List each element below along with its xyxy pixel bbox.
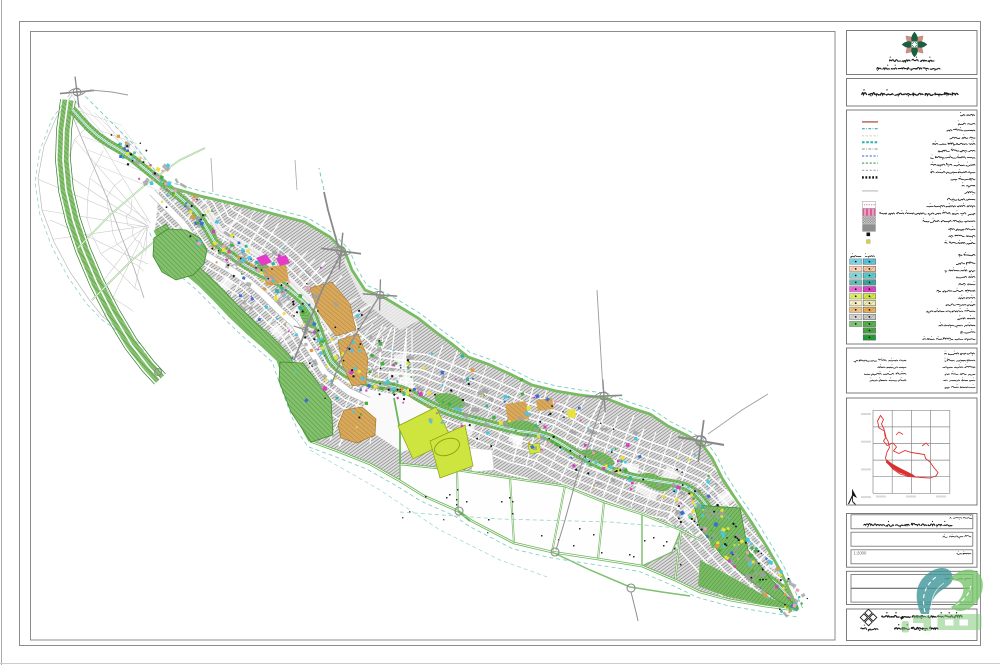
svg-text:1:2000: 1:2000 — [854, 551, 867, 556]
